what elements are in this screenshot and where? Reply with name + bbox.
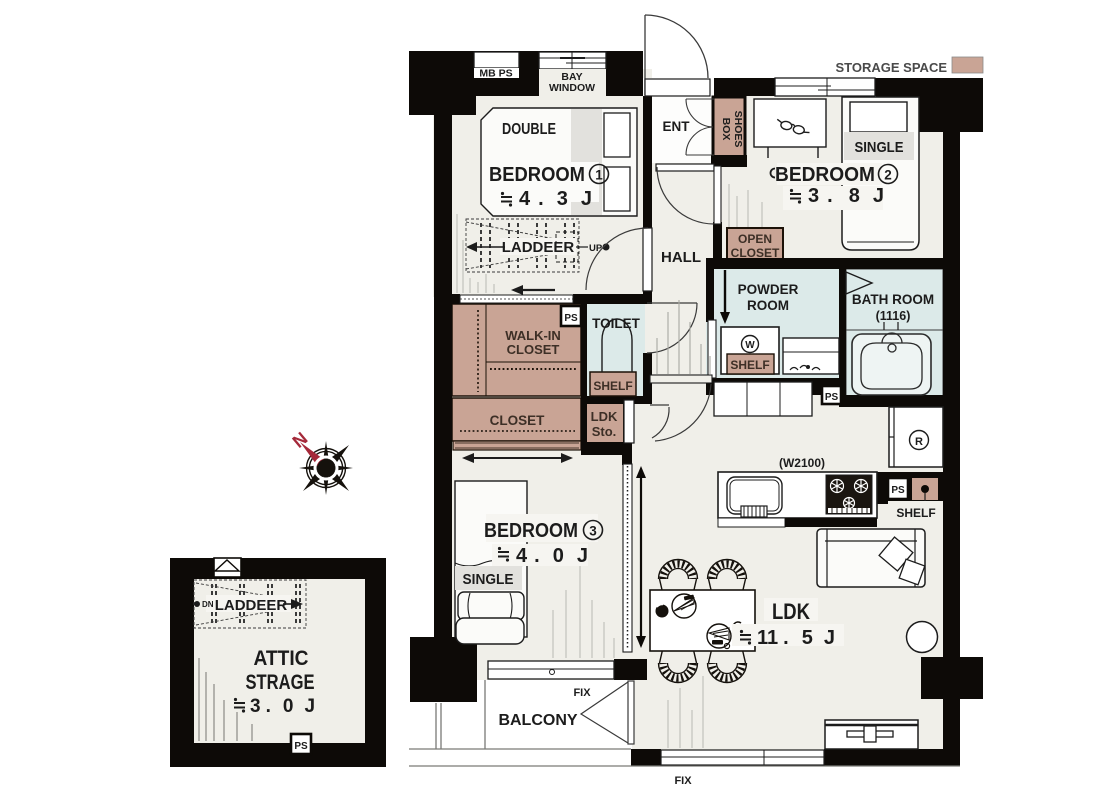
svg-text:UP: UP — [589, 243, 603, 254]
svg-text:DOUBLE: DOUBLE — [502, 121, 556, 138]
svg-text:CLOSET: CLOSET — [507, 342, 560, 357]
svg-text:BATH ROOM: BATH ROOM — [852, 292, 934, 307]
svg-text:LADDEER: LADDEER — [215, 597, 288, 614]
svg-text:3.0J: 3.0J — [250, 696, 315, 717]
svg-text:BEDROOM: BEDROOM — [775, 163, 875, 186]
svg-text:SHELF: SHELF — [896, 506, 935, 520]
svg-text:3: 3 — [589, 524, 597, 539]
svg-text:FIX: FIX — [674, 775, 692, 787]
svg-text:WINDOW: WINDOW — [549, 82, 595, 94]
svg-text:(W2100): (W2100) — [779, 456, 825, 470]
svg-text:STORAGE SPACE: STORAGE SPACE — [836, 60, 948, 75]
svg-text:Sto.: Sto. — [592, 424, 617, 439]
svg-text:SHELF: SHELF — [730, 358, 769, 372]
svg-text:DN: DN — [202, 600, 214, 609]
svg-text:SINGLE: SINGLE — [463, 571, 514, 588]
svg-text:OPEN: OPEN — [738, 232, 772, 246]
svg-text:LADDEER: LADDEER — [502, 239, 575, 256]
svg-text:STRAGE: STRAGE — [246, 671, 315, 694]
svg-text:PS: PS — [891, 485, 905, 496]
svg-text:LDK: LDK — [591, 409, 618, 424]
svg-text:POWDER: POWDER — [738, 282, 799, 297]
svg-text:(1116): (1116) — [876, 309, 911, 323]
svg-text:ROOM: ROOM — [747, 298, 789, 313]
svg-text:ENT: ENT — [663, 119, 691, 134]
svg-text:R: R — [915, 436, 923, 448]
svg-text:MB PS: MB PS — [479, 68, 512, 80]
svg-text:SINGLE: SINGLE — [855, 139, 904, 156]
svg-text:PS: PS — [294, 741, 308, 752]
svg-text:ATTIC: ATTIC — [254, 647, 309, 670]
svg-text:CLOSET: CLOSET — [731, 246, 780, 260]
svg-text:SHELF: SHELF — [593, 379, 632, 393]
svg-text:BEDROOM: BEDROOM — [484, 519, 578, 542]
svg-text:BALCONY: BALCONY — [498, 712, 577, 729]
svg-text:1: 1 — [595, 168, 603, 183]
svg-text:4.0J: 4.0J — [516, 545, 588, 567]
svg-text:W: W — [745, 340, 755, 351]
svg-text:LDK: LDK — [772, 599, 810, 624]
svg-text:FIX: FIX — [573, 687, 591, 699]
svg-text:PS: PS — [564, 313, 578, 324]
svg-text:2: 2 — [884, 168, 892, 183]
svg-text:HALL: HALL — [661, 249, 701, 266]
svg-text:PS: PS — [825, 392, 839, 403]
svg-text:CLOSET: CLOSET — [490, 413, 546, 428]
svg-text:SHOES: SHOES — [732, 111, 744, 148]
svg-text:BOX: BOX — [720, 118, 732, 141]
svg-text:WALK-IN: WALK-IN — [505, 328, 561, 343]
svg-text:BEDROOM: BEDROOM — [489, 163, 585, 186]
svg-text:TOILET: TOILET — [592, 316, 641, 331]
